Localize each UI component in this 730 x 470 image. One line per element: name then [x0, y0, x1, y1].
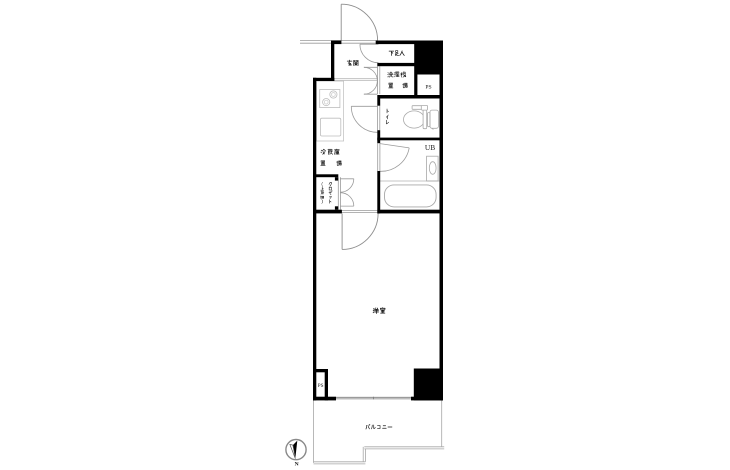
svg-text:UB: UB [425, 143, 435, 152]
svg-text:N: N [295, 461, 299, 467]
svg-text:PS: PS [318, 383, 324, 389]
svg-text:PS: PS [425, 84, 431, 90]
